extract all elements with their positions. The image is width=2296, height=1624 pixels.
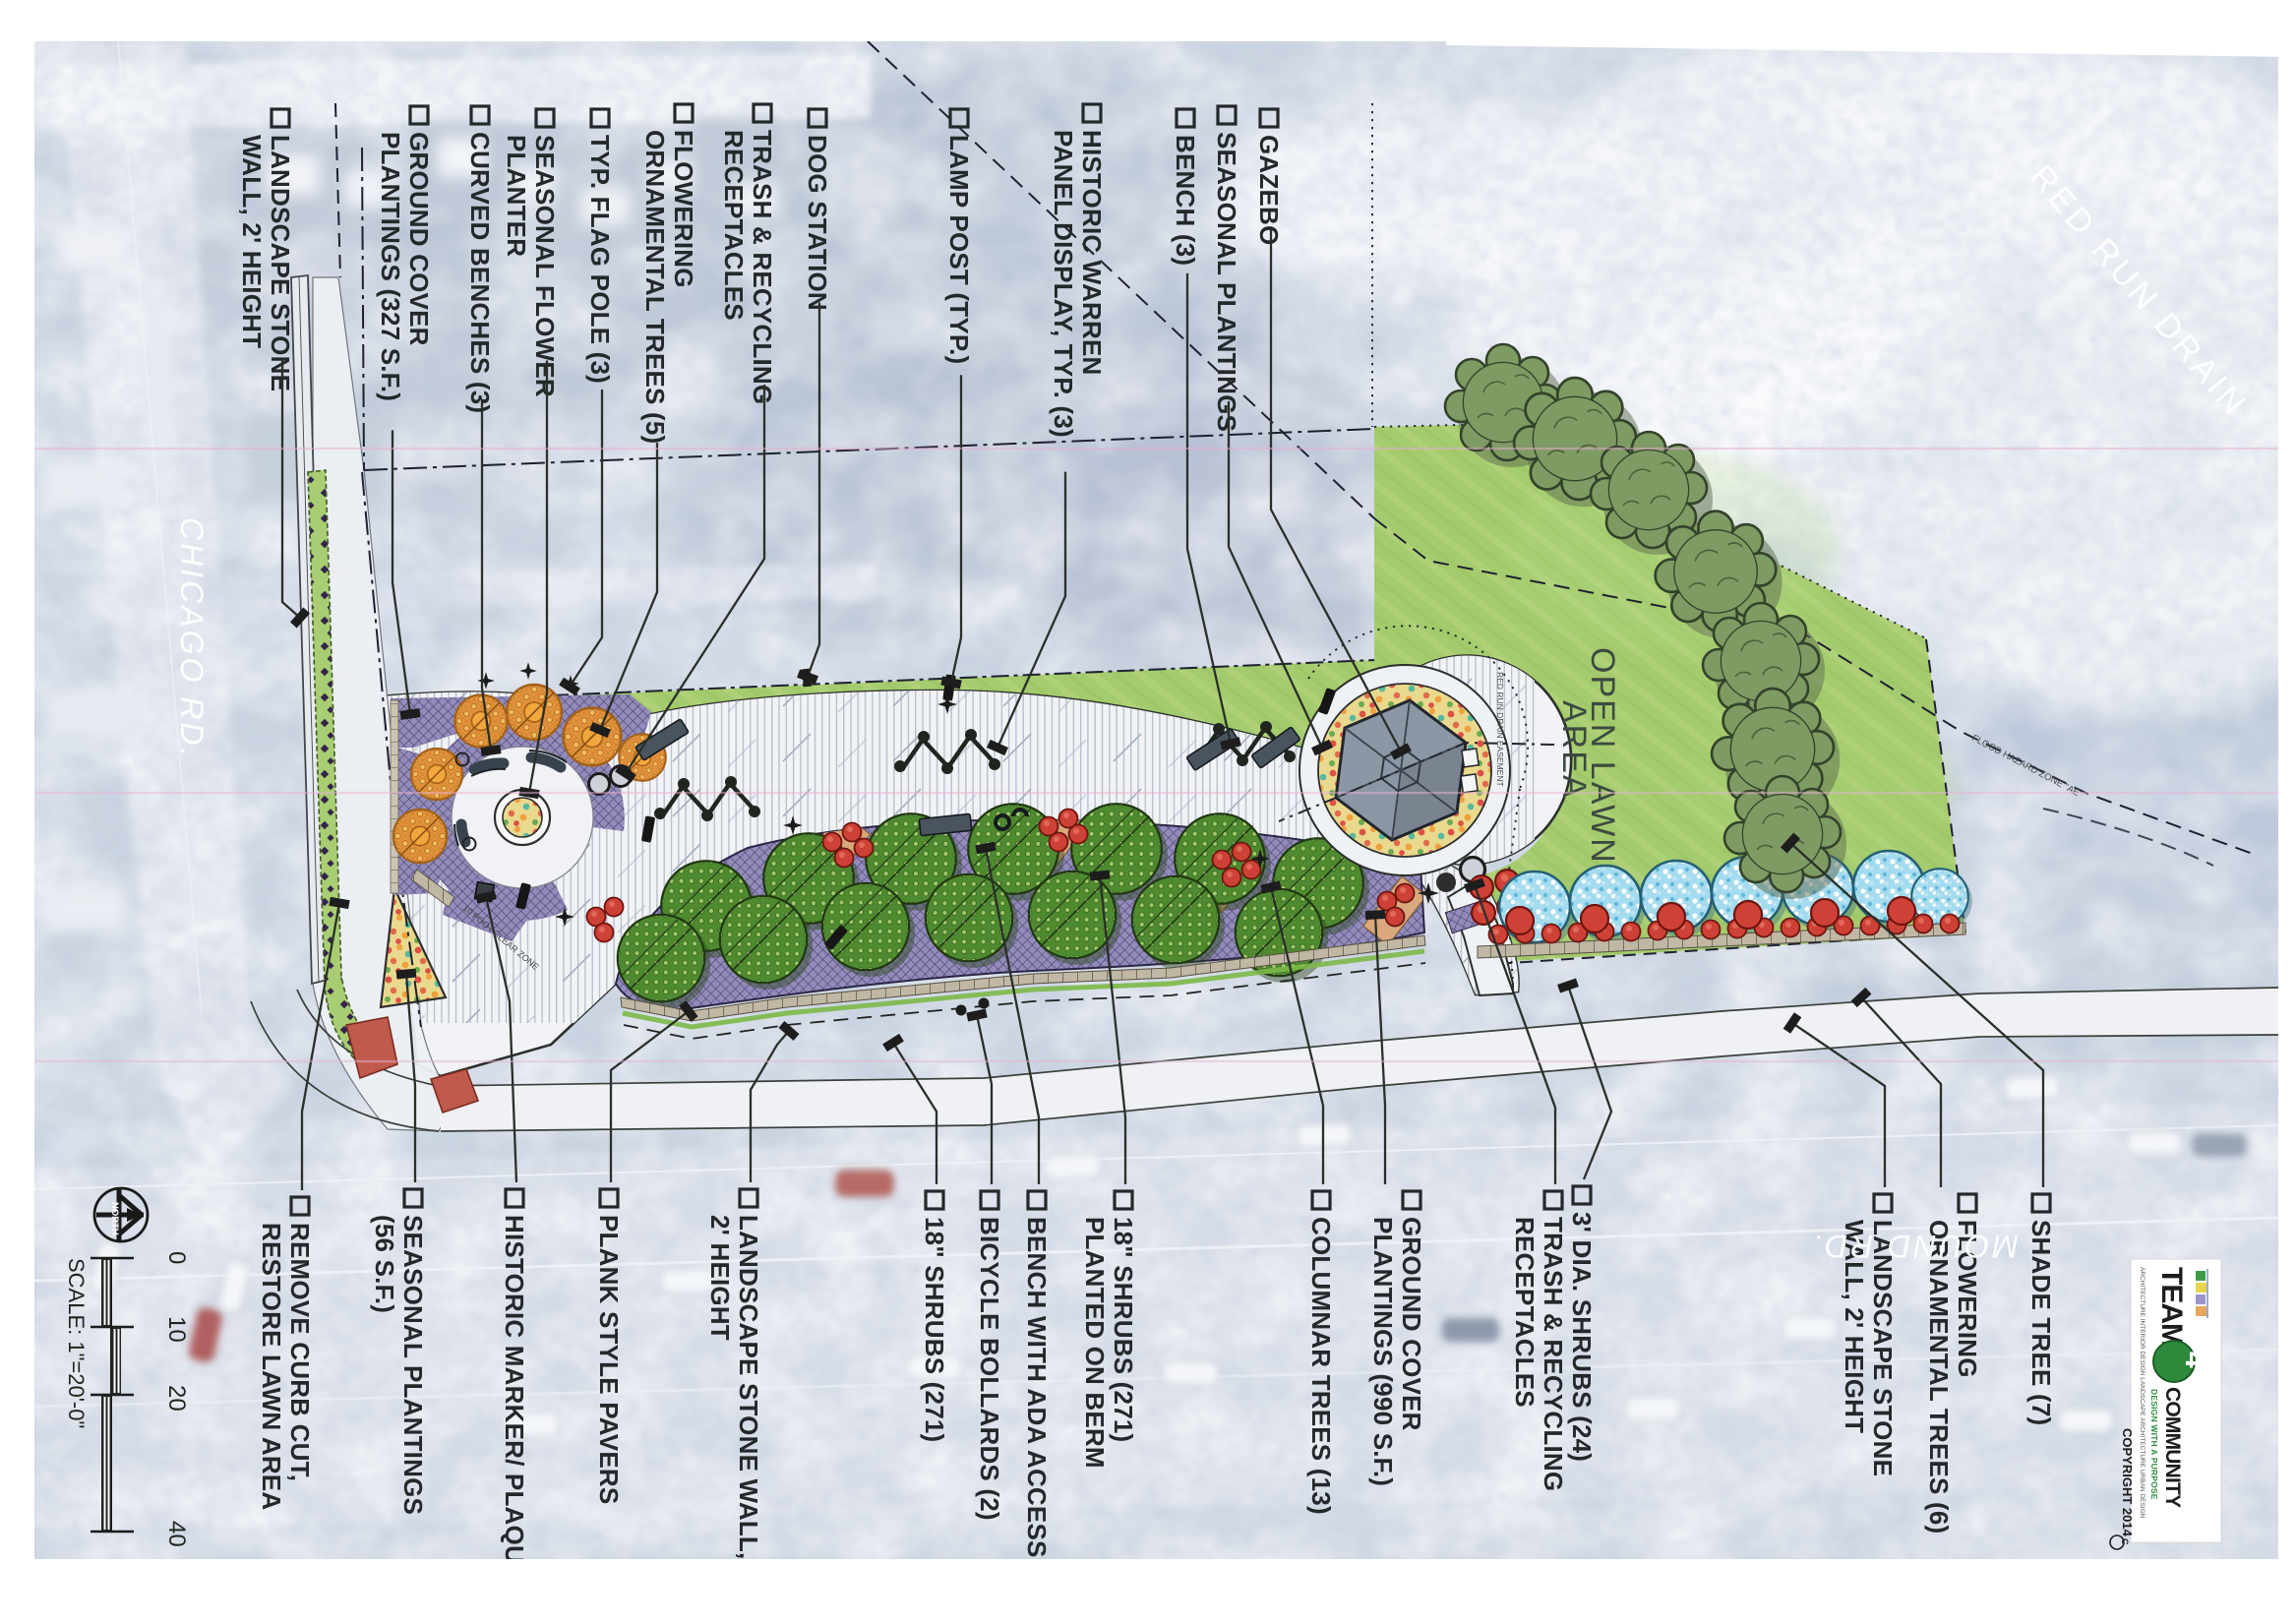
svg-text:10: 10 <box>163 1316 190 1343</box>
svg-text:FLOWERING: FLOWERING <box>669 130 698 288</box>
svg-text:SEASONAL FLOWER: SEASONAL FLOWER <box>530 135 560 397</box>
svg-text:RECEPTACLES: RECEPTACLES <box>719 130 749 321</box>
svg-text:COLUMNAR TREES (13): COLUMNAR TREES (13) <box>1306 1217 1336 1515</box>
svg-text:RED RUN DRAIN EASEMENT: RED RUN DRAIN EASEMENT <box>1495 672 1505 787</box>
svg-text:PLANTINGS (990 S.F.): PLANTINGS (990 S.F.) <box>1368 1217 1398 1486</box>
svg-text:COMMUNITY: COMMUNITY <box>2161 1387 2184 1508</box>
svg-text:BENCH (3): BENCH (3) <box>1171 135 1200 266</box>
svg-text:ARCHITECTURE INTERIOR DESIGN: ARCHITECTURE INTERIOR DESIGN LANDSCAPE A… <box>2139 1267 2145 1519</box>
svg-text:AREA: AREA <box>1555 700 1593 800</box>
svg-text:TRASH & RECYCLING: TRASH & RECYCLING <box>748 130 777 404</box>
svg-text:PANEL DISPLAY, TYP. (3): PANEL DISPLAY, TYP. (3) <box>1049 130 1078 438</box>
svg-text:DESIGN WITH A PURPOSE: DESIGN WITH A PURPOSE <box>2149 1389 2159 1500</box>
svg-text:WALL, 2' HEIGHT: WALL, 2' HEIGHT <box>237 135 267 348</box>
svg-text:BENCH WITH ADA ACCESS: BENCH WITH ADA ACCESS <box>1022 1217 1052 1558</box>
svg-text:GROUND COVER: GROUND COVER <box>404 132 434 346</box>
svg-text:COPYRIGHT 2014: COPYRIGHT 2014 <box>2120 1428 2135 1537</box>
svg-text:REMOVE CURB CUT,: REMOVE CURB CUT, <box>285 1223 315 1481</box>
svg-text:4: 4 <box>2179 1352 2211 1368</box>
svg-text:PLANTER: PLANTER <box>502 135 531 257</box>
svg-text:HISTORIC WARREN: HISTORIC WARREN <box>1077 130 1107 376</box>
svg-text:CHICAGO RD.: CHICAGO RD. <box>174 517 210 759</box>
svg-text:2' HEIGHT: 2' HEIGHT <box>705 1215 735 1341</box>
svg-text:ORNAMENTAL TREES (5): ORNAMENTAL TREES (5) <box>640 130 670 444</box>
svg-text:SHADE TREE (7): SHADE TREE (7) <box>2026 1220 2056 1425</box>
svg-text:NORTH: NORTH <box>109 1202 120 1235</box>
svg-text:TYP. FLAG POLE (3): TYP. FLAG POLE (3) <box>585 135 615 384</box>
svg-text:18" SHRUBS (271): 18" SHRUBS (271) <box>1109 1217 1138 1442</box>
svg-text:LANDSCAPE STONE: LANDSCAPE STONE <box>266 135 295 391</box>
svg-text:PLANTINGS (327 S.F.): PLANTINGS (327 S.F.) <box>376 132 405 401</box>
svg-text:TEAM: TEAM <box>2155 1267 2188 1347</box>
svg-text:SEASONAL PLANTINGS: SEASONAL PLANTINGS <box>1212 132 1241 432</box>
svg-text:PLANK STYLE PAVERS: PLANK STYLE PAVERS <box>594 1215 624 1504</box>
svg-text:0: 0 <box>163 1251 190 1264</box>
svg-text:LANDSCAPE STONE WALL,: LANDSCAPE STONE WALL, <box>734 1215 763 1559</box>
svg-text:3' DIA. SHRUBS (24): 3' DIA. SHRUBS (24) <box>1567 1212 1597 1462</box>
svg-text:RESTORE LAWN AREA: RESTORE LAWN AREA <box>257 1223 286 1510</box>
svg-text:RECEPTACLES: RECEPTACLES <box>1510 1217 1540 1408</box>
svg-text:ORNAMENTAL TREES (6): ORNAMENTAL TREES (6) <box>1924 1220 1954 1534</box>
svg-text:BICYCLE BOLLARDS (2): BICYCLE BOLLARDS (2) <box>975 1217 1004 1521</box>
svg-text:40: 40 <box>163 1521 190 1547</box>
svg-text:20: 20 <box>163 1385 190 1412</box>
svg-text:(56 S.F.): (56 S.F.) <box>370 1215 399 1313</box>
svg-text:DOG STATION: DOG STATION <box>803 135 832 311</box>
svg-text:SEASONAL PLANTINGS: SEASONAL PLANTINGS <box>398 1215 428 1515</box>
svg-text:PLANTED ON BERM: PLANTED ON BERM <box>1080 1217 1110 1469</box>
svg-text:HISTORIC MARKER/ PLAQUE: HISTORIC MARKER/ PLAQUE <box>500 1215 529 1581</box>
svg-text:GAZEBO: GAZEBO <box>1254 135 1284 245</box>
svg-text:18" SHRUBS (271): 18" SHRUBS (271) <box>920 1217 949 1442</box>
svg-text:TRASH & RECYCLING: TRASH & RECYCLING <box>1539 1217 1568 1491</box>
svg-text:CURVED BENCHES (3): CURVED BENCHES (3) <box>465 132 495 413</box>
svg-text:C: C <box>2120 1538 2130 1545</box>
svg-text:SCALE: 1"=20'-0": SCALE: 1"=20'-0" <box>64 1258 89 1428</box>
svg-text:LAMP POST (TYP.): LAMP POST (TYP.) <box>944 135 974 364</box>
svg-text:GROUND COVER: GROUND COVER <box>1397 1217 1426 1431</box>
svg-text:MOUND RD.: MOUND RD. <box>1810 1229 2019 1264</box>
